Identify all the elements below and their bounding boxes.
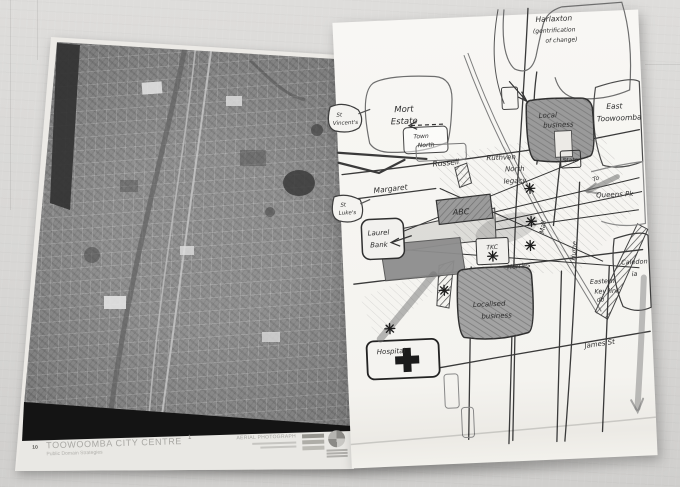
sketch-sheet: Harlaxton (gentrification of change) Mor… (0, 0, 680, 487)
st-vincents-bubble (328, 103, 362, 132)
label-localised-business: Localised (473, 300, 506, 309)
label-ruthven-north: Ruthven (486, 153, 516, 162)
label-st-vincents: Vincent's (333, 120, 359, 127)
label-caledonia: Caledon (621, 257, 648, 266)
label-local-business: Local (539, 111, 558, 120)
label-ruthven-north: North (505, 165, 525, 174)
label-james-st: James St (582, 338, 616, 351)
label-mort-estate: Mort (394, 104, 414, 115)
label-east-toowoomba: East (606, 101, 624, 111)
label-east-toowoomba: Toowoomba (597, 112, 643, 123)
sketch-map: Harlaxton (gentrification of change) Mor… (332, 10, 657, 469)
label-st-lukes: St (340, 202, 347, 208)
label-harlaxton: of change) (545, 36, 577, 44)
label-town-north: Town (413, 133, 429, 141)
label-eastern-key-link: Key link (594, 287, 620, 296)
label-eastern-key-link: Eastern (590, 277, 615, 286)
label-state: State (563, 157, 579, 164)
label-to-queens-pk: Queens Pk (596, 190, 634, 200)
st-lukes-bubble (332, 194, 363, 222)
label-harlaxton: (gentrification (533, 26, 576, 35)
paper-fold-crease (350, 417, 656, 444)
sketch-map-paper: Harlaxton (gentrification of change) Mor… (332, 10, 657, 469)
label-laurel-bank: Laurel (367, 229, 389, 238)
label-abc: ABC (452, 207, 470, 217)
label-ruthven-north: legacy (503, 177, 527, 186)
label-local-business: business (543, 120, 574, 129)
label-caledonia: ia (631, 270, 637, 278)
east-toowoomba-outline (592, 79, 643, 168)
label-mort-estate: Estate (391, 116, 418, 127)
label-harlaxton: Harlaxton (535, 13, 572, 24)
label-tkc: TKC (486, 244, 499, 252)
label-laurel-bank: Bank (370, 241, 389, 250)
label-st-lukes: Luke's (339, 210, 357, 217)
label-hospital: Hospital (377, 347, 406, 356)
photo-scene: 10 TOOWOOMBA CITY CENTRE Public Domain S… (0, 0, 680, 487)
label-town-north: North (418, 142, 435, 150)
label-localised-business: business (481, 311, 512, 320)
label-db: db (597, 296, 605, 303)
